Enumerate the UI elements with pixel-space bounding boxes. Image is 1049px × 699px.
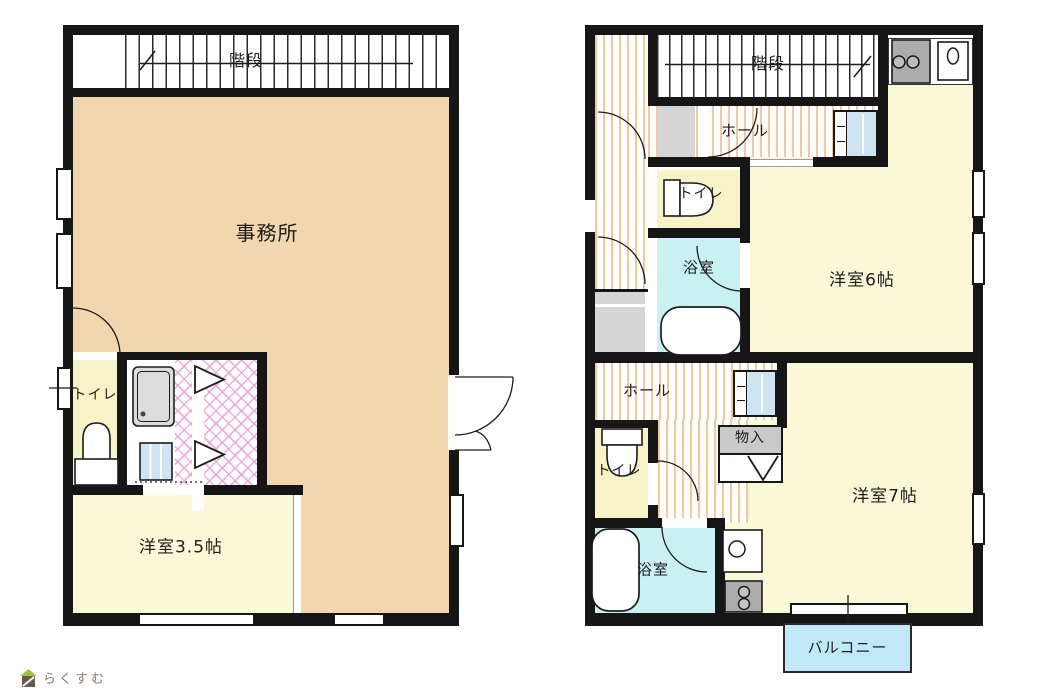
room-label-toilet-upper: トイレ [679,187,724,201]
window [138,613,255,626]
kitchen-counter [888,38,973,85]
room-balcony: バルコニー [783,623,912,673]
window [972,493,985,545]
right-floor-plan: 階段 ホール トイレ 浴室 洋室6帖 ホール 物入 トイレ 浴室 洋室7帖 [585,25,983,626]
wall [648,157,750,167]
window [56,168,73,220]
stairs-treads [125,35,449,88]
window [972,170,985,218]
closet-gray [595,307,645,352]
room-label-stairs: 階段 [751,56,785,72]
hall-upper-corridor [595,35,648,290]
wall [715,523,725,613]
stairs-landing [73,35,125,88]
room-label-hall-upper: ホール [721,124,769,139]
room-label-western-3-5: 洋室3.5帖 [139,540,223,557]
brand-logo: らくすむ [20,668,107,687]
cabinet-icon [833,110,878,158]
room-label-western-7: 洋室7帖 [852,489,918,506]
window [333,613,385,626]
wall [648,35,657,97]
room-label-bath-lower: 浴室 [637,563,669,578]
entrance-door-arc [455,377,513,450]
stair-landing-gray [657,106,695,157]
outer-wall [585,25,983,35]
wall [120,352,267,360]
room-label-stairs: 階段 [229,53,263,69]
wall [63,485,143,495]
house-icon [20,669,37,687]
room-divider-partition [293,495,301,613]
outer-wall [63,613,459,626]
door-gap [648,463,658,505]
wall [648,228,750,238]
closet-gray [595,292,645,304]
wall-floor-divider [585,352,973,363]
room-label-office: 事務所 [236,223,299,243]
wall [203,485,303,495]
wall [257,352,267,488]
wall [777,363,787,428]
room-toilet [73,360,117,485]
wall [117,352,127,488]
wall [73,88,449,97]
window [972,232,985,285]
wall [813,157,888,167]
outer-wall [63,25,73,626]
window [56,233,73,289]
outer-wall [63,25,459,35]
door-gap [700,106,708,157]
room-label-balcony: バルコニー [808,641,888,656]
washroom-fixture-bay [127,360,175,485]
thin-wall-line [595,289,648,292]
room-label-hall-lower: ホール [623,384,671,399]
wall [648,97,885,106]
door-gap [662,518,707,528]
room-label-toilet: トイレ [73,388,118,402]
room-label-storage: 物入 [735,431,765,445]
floorplan-canvas: 階段 事務所 トイレ 洋室3.5帖 [0,0,1049,699]
cabinet-icon [733,370,777,417]
brand-text: らくすむ [43,668,107,687]
room-opening [750,159,813,167]
room-label-bath-upper: 浴室 [683,261,715,276]
window [585,200,595,232]
window [449,494,464,547]
doorway-gap [73,352,120,360]
room-label-toilet-lower: トイレ [597,464,642,478]
window [790,603,908,616]
window [57,367,72,410]
wall [878,35,888,163]
entrance-door-gap [448,375,459,450]
door-gap [740,243,750,288]
left-floor-plan: 階段 事務所 トイレ 洋室3.5帖 [63,25,459,626]
room-bath-upper [657,238,740,352]
folding-door-track [192,361,204,511]
room-label-western-6: 洋室6帖 [829,273,895,290]
outer-wall [585,25,595,626]
